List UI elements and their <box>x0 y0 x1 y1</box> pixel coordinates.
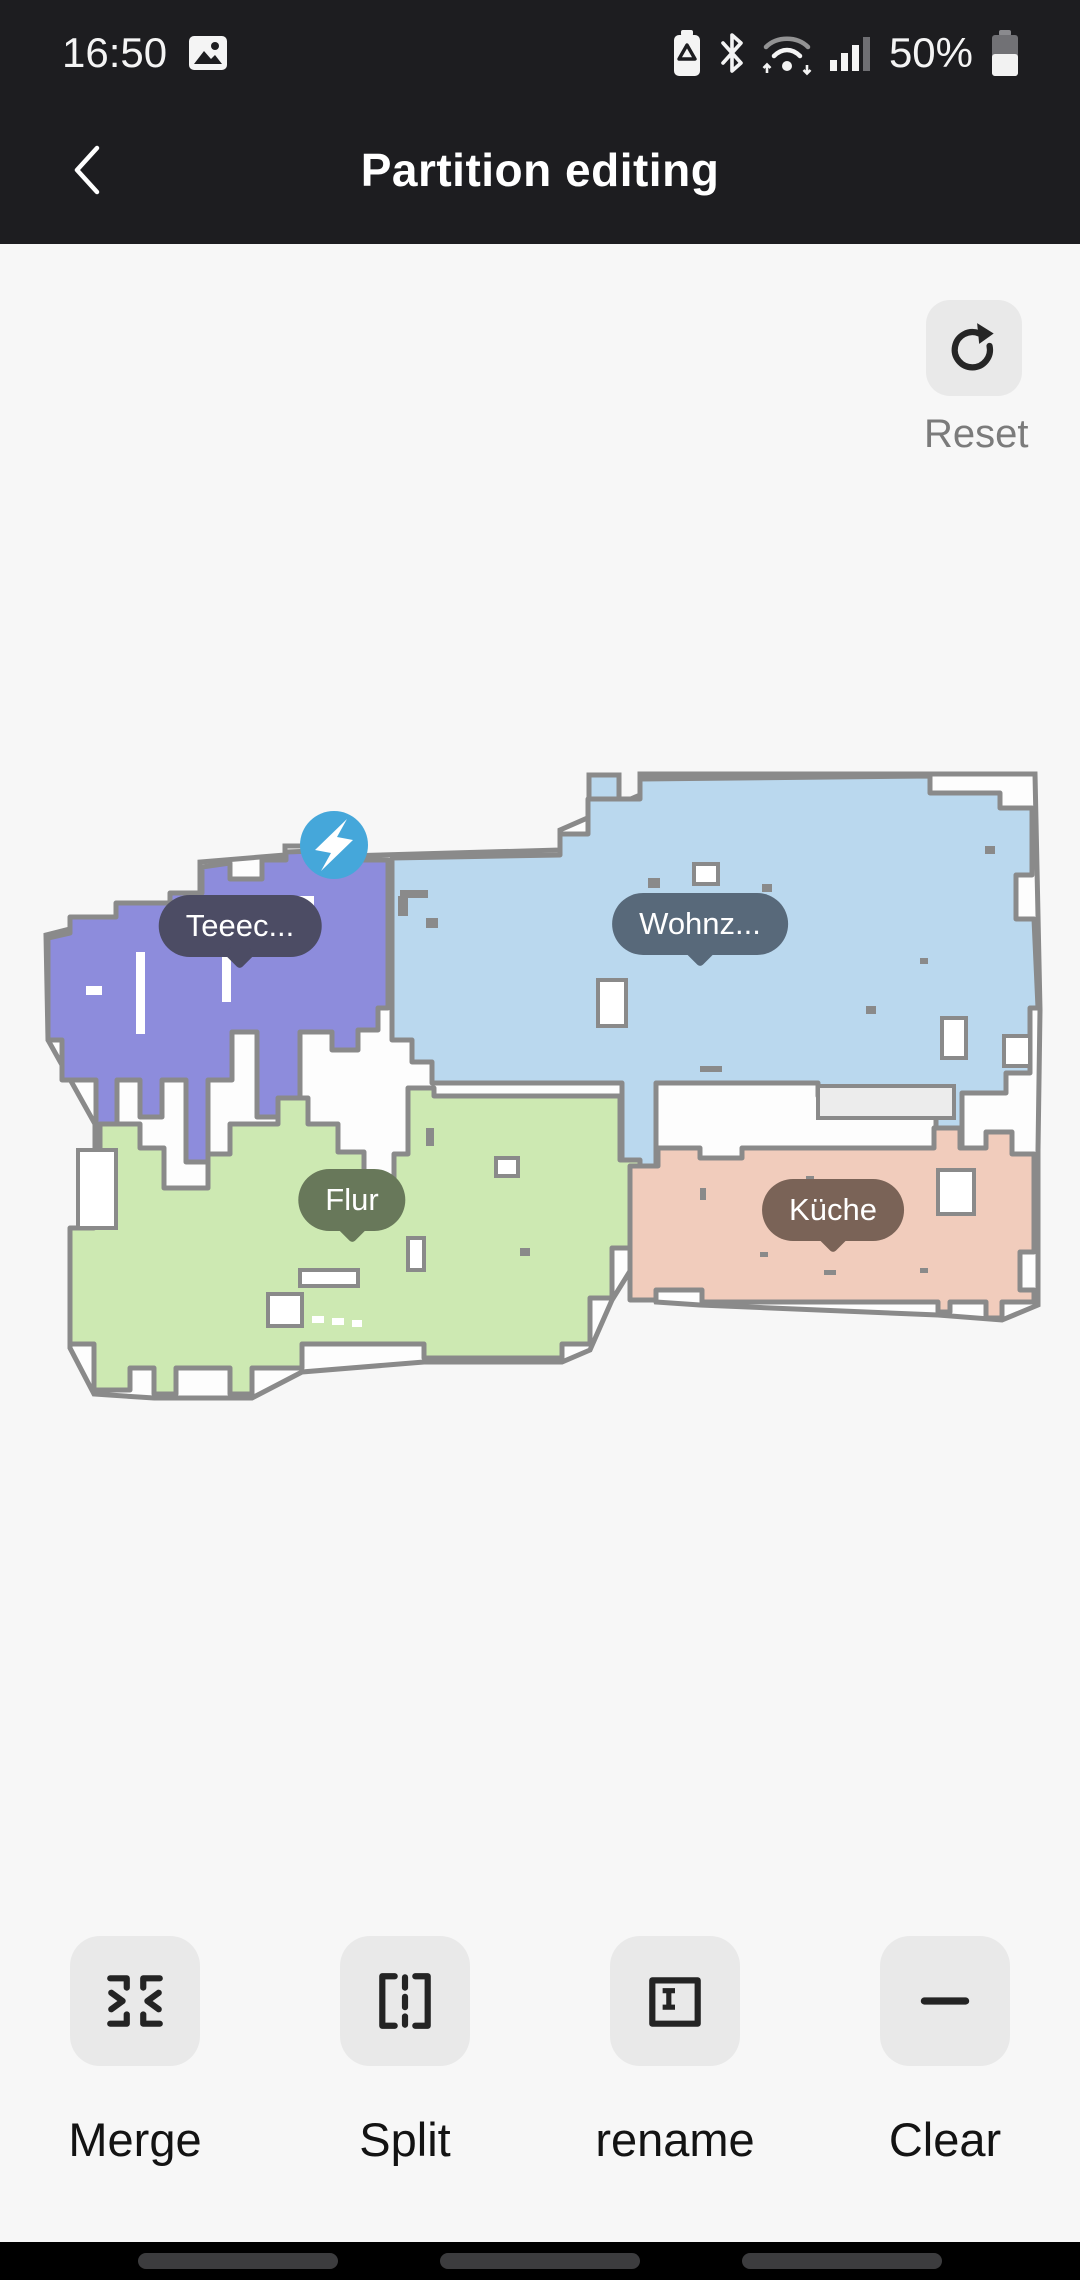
room-label-kueche[interactable]: Küche <box>762 1179 904 1241</box>
nav-pill-back[interactable] <box>742 2253 942 2269</box>
tool-rename: rename <box>540 1936 810 2167</box>
split-icon <box>372 1968 438 2034</box>
navigation-bar <box>0 2242 1080 2280</box>
refresh-icon <box>945 319 1003 377</box>
reset-button[interactable] <box>926 300 1022 396</box>
merge-button[interactable] <box>70 1936 200 2066</box>
rename-icon <box>642 1968 708 2034</box>
clear-icon <box>912 1968 978 2034</box>
merge-label: Merge <box>68 2112 201 2167</box>
screen: 16:50 <box>0 0 1080 2280</box>
charging-dock-icon[interactable] <box>300 811 368 879</box>
toolbar: Merge Split rename <box>0 1936 1080 2167</box>
nav-pill-home[interactable] <box>440 2253 640 2269</box>
room-label-teeec[interactable]: Teeec... <box>159 895 322 957</box>
split-button[interactable] <box>340 1936 470 2066</box>
room-label-wohnz[interactable]: Wohnz... <box>612 893 788 955</box>
clear-button[interactable] <box>880 1936 1010 2066</box>
split-label: Split <box>359 2112 450 2167</box>
tool-clear: Clear <box>810 1936 1080 2167</box>
rename-label: rename <box>595 2112 754 2167</box>
merge-icon <box>102 1968 168 2034</box>
room-label-flur[interactable]: Flur <box>298 1169 405 1231</box>
reset-group: Reset <box>924 300 1024 457</box>
clear-label: Clear <box>889 2112 1001 2167</box>
reset-label: Reset <box>924 412 1024 457</box>
tool-split: Split <box>270 1936 540 2167</box>
tool-merge: Merge <box>0 1936 270 2167</box>
room-unassigned[interactable] <box>818 1086 954 1118</box>
rename-button[interactable] <box>610 1936 740 2066</box>
nav-pill-recents[interactable] <box>138 2253 338 2269</box>
